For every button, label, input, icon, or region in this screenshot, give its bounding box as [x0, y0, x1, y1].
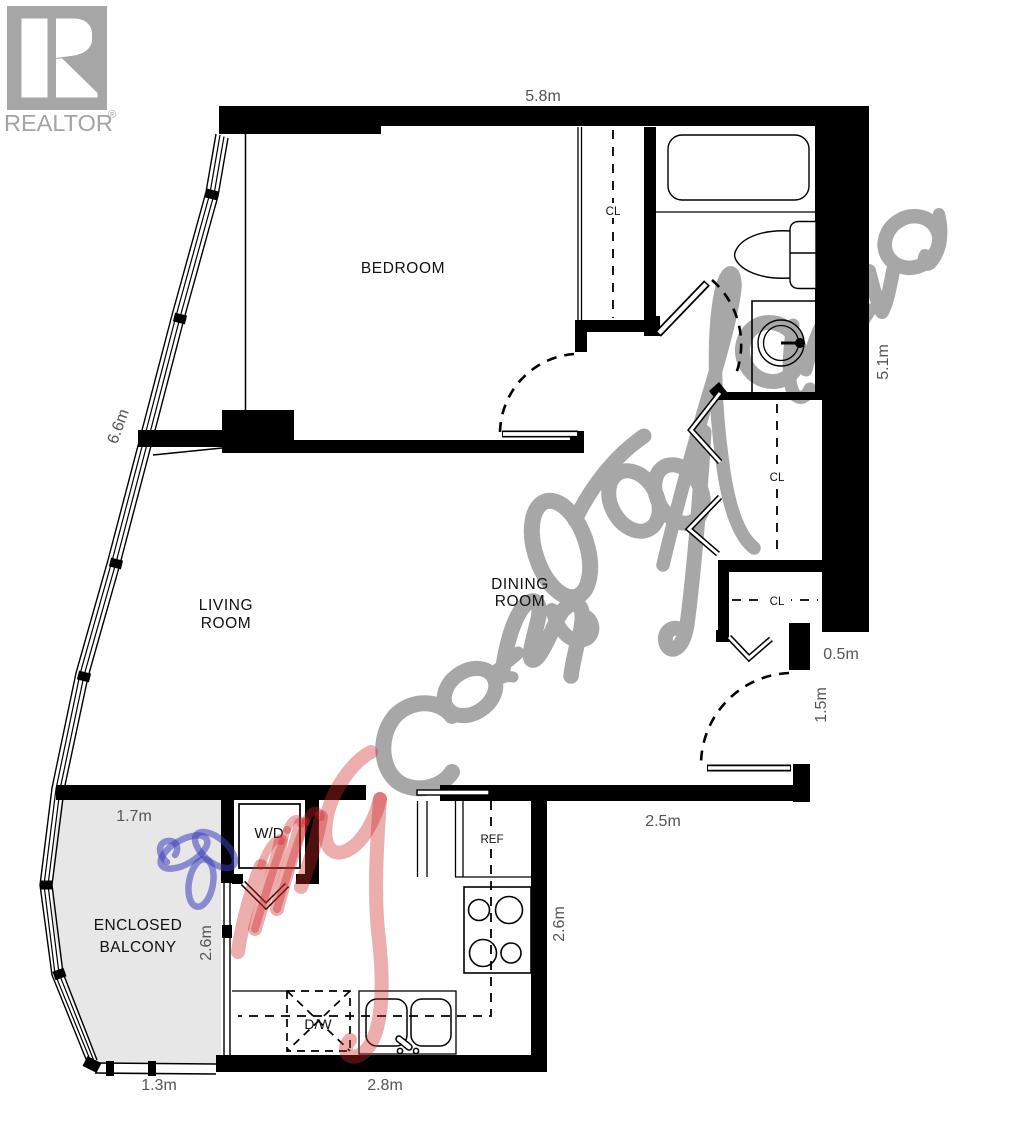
svg-text:ENCLOSED: ENCLOSED [94, 917, 182, 934]
svg-text:0.5m: 0.5m [823, 646, 859, 663]
svg-text:5.8m: 5.8m [525, 88, 561, 105]
svg-text:CL: CL [770, 472, 785, 484]
svg-text:1.3m: 1.3m [141, 1077, 177, 1094]
svg-text:D/W: D/W [304, 1016, 332, 1032]
svg-text:2.6m: 2.6m [551, 906, 568, 942]
svg-text:BALCONY: BALCONY [100, 939, 177, 956]
svg-text:REALTOR: REALTOR [4, 110, 113, 136]
svg-text:5.1m: 5.1m [875, 344, 892, 380]
svg-text:REF: REF [481, 834, 504, 846]
svg-text:CL: CL [606, 206, 621, 218]
svg-text:1.5m: 1.5m [813, 687, 830, 723]
svg-text:®: ® [108, 109, 116, 121]
svg-text:CL: CL [770, 596, 785, 608]
svg-text:ROOM: ROOM [201, 615, 252, 632]
svg-text:2.6m: 2.6m [198, 925, 215, 961]
svg-text:2.5m: 2.5m [645, 813, 681, 830]
svg-text:2.8m: 2.8m [367, 1077, 403, 1094]
svg-text:ROOM: ROOM [495, 593, 546, 610]
svg-text:DINING: DINING [491, 576, 549, 593]
svg-text:1.7m: 1.7m [116, 808, 152, 825]
svg-text:BEDROOM: BEDROOM [361, 260, 445, 277]
svg-text:LIVING: LIVING [199, 597, 253, 614]
